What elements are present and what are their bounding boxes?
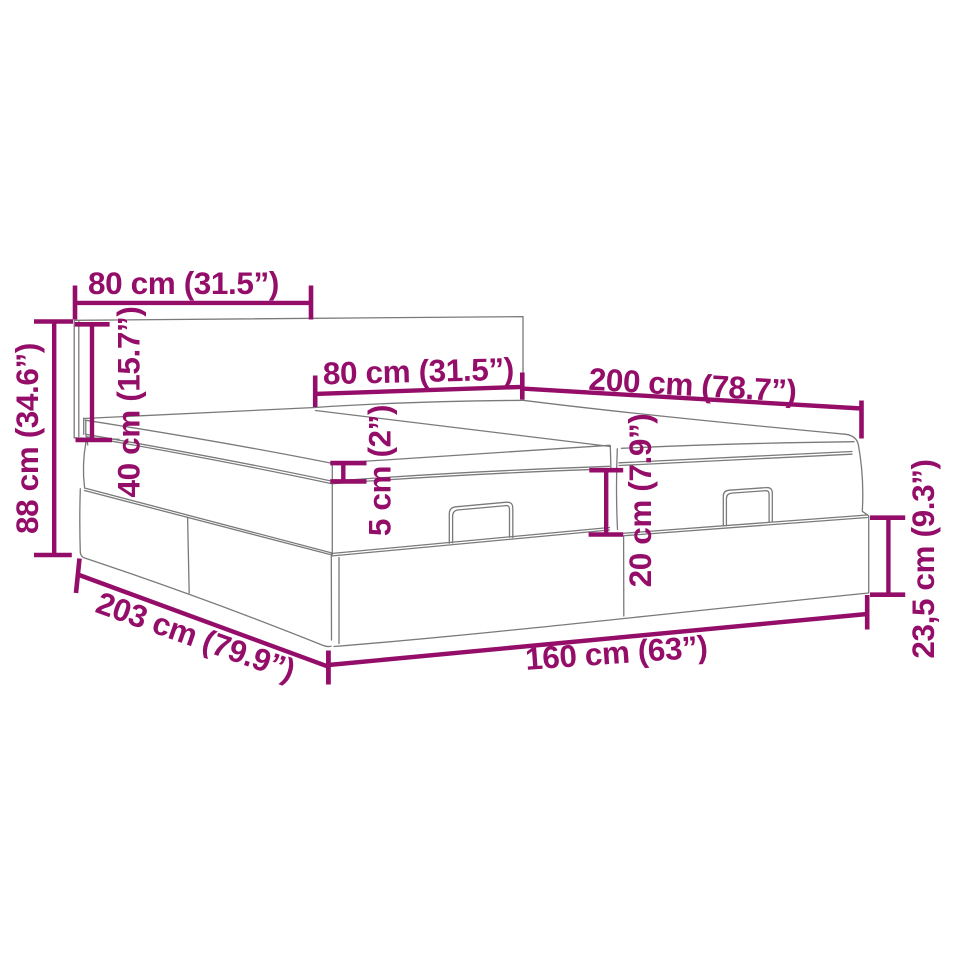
svg-text:40 cm (15.7”): 40 cm (15.7”) bbox=[111, 307, 147, 498]
svg-text:23,5 cm (9.3”): 23,5 cm (9.3”) bbox=[905, 459, 941, 658]
svg-text:160 cm (63”): 160 cm (63”) bbox=[524, 628, 709, 677]
svg-text:203 cm (79.9”): 203 cm (79.9”) bbox=[92, 584, 300, 688]
svg-text:20 cm (7.9”): 20 cm (7.9”) bbox=[622, 414, 658, 588]
svg-text:200 cm (78.7”): 200 cm (78.7”) bbox=[588, 361, 798, 409]
svg-text:80 cm (31.5”): 80 cm (31.5”) bbox=[322, 351, 514, 392]
svg-text:5 cm (2”): 5 cm (2”) bbox=[362, 405, 398, 536]
svg-text:88 cm (34.6”): 88 cm (34.6”) bbox=[9, 343, 45, 534]
svg-text:80 cm (31.5”): 80 cm (31.5”) bbox=[88, 265, 279, 301]
